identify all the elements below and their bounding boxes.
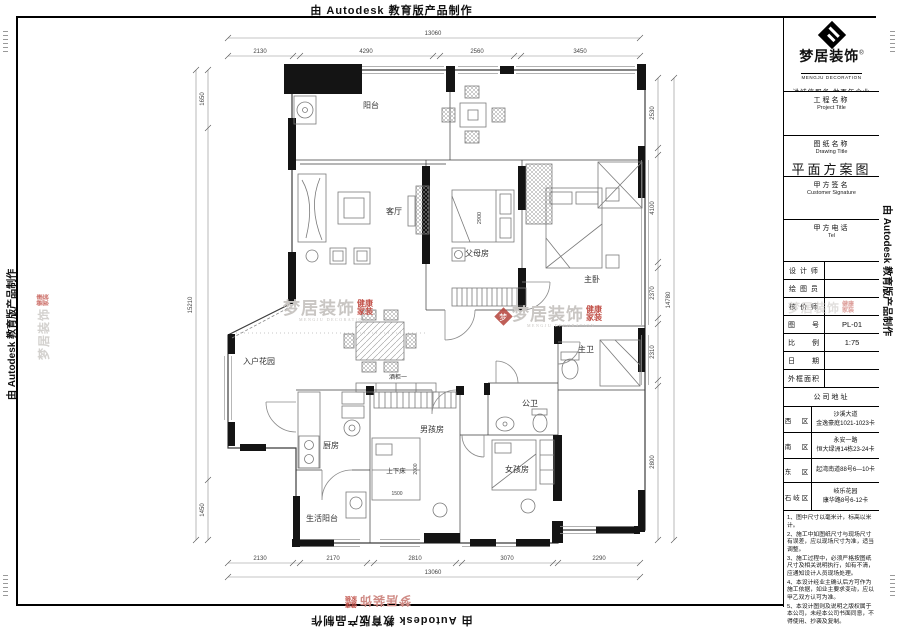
room-label-living: 客厅 (386, 206, 402, 216)
brand-name-en: MENGJU DECORATION (801, 73, 861, 80)
dim-bottom-3: 2810 (408, 556, 422, 562)
info-row-frame-area: 外框面积 (784, 370, 879, 388)
title-block: 梦居装饰® MENGJU DECORATION 讲诚信服务 做百年企业 工程名称… (783, 18, 879, 607)
room-label-parents: 父母房 (465, 248, 489, 258)
drawing-sheet: 由 Autodesk 教育版产品制作 由 Autodesk 教育版产品制作 由 … (0, 0, 899, 632)
general-notes: 1、图中尺寸以毫米计，标高以米计。 2、施工中如图纸尺寸与现场尺寸有误差，应以现… (784, 511, 879, 626)
dim-right-5: 2800 (650, 455, 656, 469)
brand-name: 梦居装饰® (784, 48, 879, 66)
dimension-text-layer: 13060 2130 4290 2560 3450 2130 2170 2810… (188, 31, 672, 576)
dim-right-total: 14780 (666, 291, 672, 308)
dim-left-top: 1650 (200, 92, 206, 106)
info-row-draftsman: 绘 图 员 (784, 280, 879, 298)
dim-bottom-total: 13060 (425, 570, 442, 576)
room-label-entry-garden: 入户花园 (243, 356, 275, 366)
note-item: 4、本设计经业主确认后方可作为施工依据，如业主要求变动，应以甲乙双方认可为准。 (787, 580, 876, 603)
address-row-west: 西 区 沙溪大道金逸豪庭1021-1023卡 (784, 407, 879, 433)
room-label-boys: 男孩房 (420, 424, 444, 434)
room-label-wine-cabinet: 酒柜一 (389, 373, 407, 381)
dim-right-4: 2310 (650, 345, 656, 359)
room-label-master: 主卧 (584, 274, 600, 284)
dim-bunk-length: 2000 (413, 463, 419, 474)
dim-right-2: 4100 (650, 201, 656, 215)
dim-bottom-4: 3070 (500, 556, 514, 562)
room-label-kitchen: 厨房 (323, 440, 339, 450)
drawing-title-value: 平面方案图 (784, 159, 879, 177)
dim-right-3: 2370 (650, 286, 656, 300)
dimensions-layer (193, 35, 677, 580)
room-label-bunk-bed: 上下床 (386, 466, 406, 475)
dim-top-1: 2130 (253, 49, 267, 55)
dim-bottom-1: 2130 (253, 556, 267, 562)
note-item: 2、施工中如图纸尺寸与现场尺寸有误差，应以现场尺寸为准，适当调整。 (787, 532, 876, 555)
info-row-designer: 设 计 师 (784, 262, 879, 280)
info-row-date: 日 期 (784, 352, 879, 370)
info-row-drawing-no: 图 号PL-01 (784, 316, 879, 334)
room-label-service-balcony: 生活阳台 (306, 513, 338, 523)
field-customer-signature: 甲方签名 Customer Signature (784, 177, 879, 220)
floor-plan-svg: 13060 2130 4290 2560 3450 2130 2170 2810… (0, 0, 899, 632)
room-label-girls: 女孩房 (505, 464, 529, 474)
address-header: 公司地址 (784, 388, 879, 407)
dim-parents-bed: 2900 (477, 212, 483, 224)
note-item: 3、施工过程中，必须严格按图纸尺寸及相关说明执行，如有不清，应通知设计人员现场处… (787, 556, 876, 579)
address-row-east: 东 区 起湾南道88号6—10卡 (784, 459, 879, 483)
dim-right-1: 2530 (650, 106, 656, 120)
dim-left-bottom: 1450 (200, 503, 206, 517)
dim-left-total: 15210 (188, 296, 194, 313)
info-row-scale: 比 例1:75 (784, 334, 879, 352)
address-row-south: 南 区 永安一路恒大绿洲14栋23-24卡 (784, 433, 879, 459)
furniture-layer (294, 86, 642, 518)
wall-fill-layer (228, 64, 646, 547)
dim-top-3: 2560 (470, 49, 484, 55)
room-label-master-bath: 主卫 (578, 344, 594, 354)
field-customer-tel: 甲方电话 Tel (784, 220, 879, 262)
field-project-title: 工程名称 Project Title (784, 92, 879, 136)
dim-bottom-2: 2170 (326, 556, 340, 562)
field-drawing-title: 图纸名称 Drawing Title 平面方案图 (784, 136, 879, 177)
brand-diamond-icon (817, 21, 845, 49)
note-item: 1、图中尺寸以毫米计，标高以米计。 (787, 515, 876, 530)
company-logo-block: 梦居装饰® MENGJU DECORATION 讲诚信服务 做百年企业 (784, 18, 879, 92)
room-label-balcony: 阳台 (363, 100, 379, 110)
dim-top-2: 4290 (359, 49, 373, 55)
info-row-pricer: 核 价 师 (784, 298, 879, 316)
dim-bottom-5: 2290 (592, 556, 606, 562)
note-item: 5、本设计图则及说明之版权属于本公司，未经本公司书面同意，不得使用、抄袭及复制。 (787, 604, 876, 627)
address-row-shiqi: 石岐区 岐乐花园康华路8号6-12卡 (784, 483, 879, 511)
dim-bunk-width: 1500 (391, 491, 402, 497)
dim-top-total: 13060 (425, 31, 442, 37)
dim-top-4: 3450 (573, 49, 587, 55)
room-label-public-bath: 公卫 (522, 399, 538, 408)
